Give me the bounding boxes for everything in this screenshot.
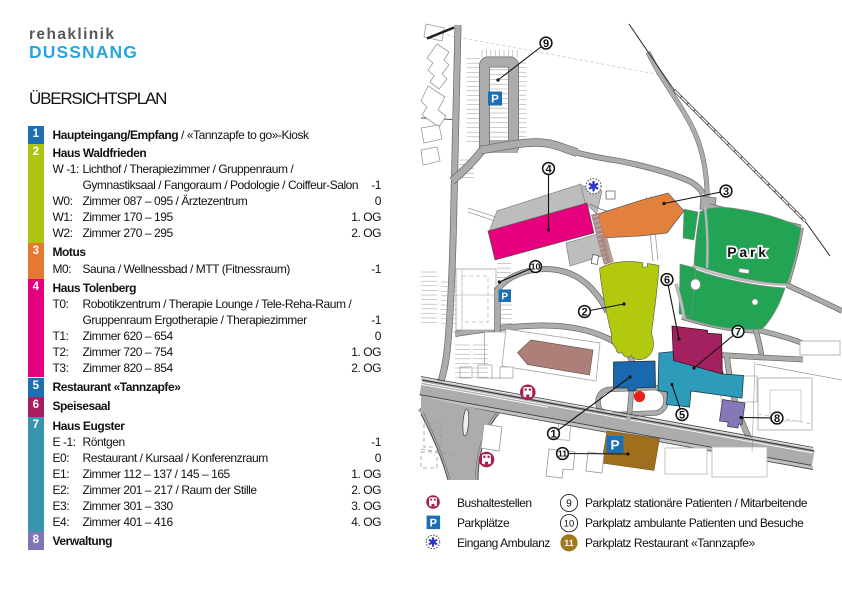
svg-text:Park: Park	[727, 244, 769, 260]
svg-text:3: 3	[723, 186, 729, 198]
svg-text:7: 7	[735, 327, 741, 339]
svg-text:11: 11	[564, 538, 574, 548]
svg-text:11: 11	[558, 449, 567, 459]
svg-text:9: 9	[543, 38, 549, 50]
svg-text:P: P	[501, 291, 508, 302]
svg-text:6: 6	[664, 275, 670, 287]
svg-text:4: 4	[545, 164, 552, 176]
svg-text:10: 10	[564, 518, 574, 529]
svg-text:P: P	[430, 517, 437, 529]
svg-text:P: P	[491, 94, 499, 106]
svg-text:2: 2	[581, 307, 587, 319]
svg-text:5: 5	[679, 410, 685, 422]
svg-text:10: 10	[531, 262, 541, 272]
svg-text:9: 9	[566, 499, 572, 510]
svg-text:8: 8	[774, 413, 780, 425]
svg-text:P: P	[610, 437, 619, 452]
svg-text:1: 1	[550, 429, 556, 441]
